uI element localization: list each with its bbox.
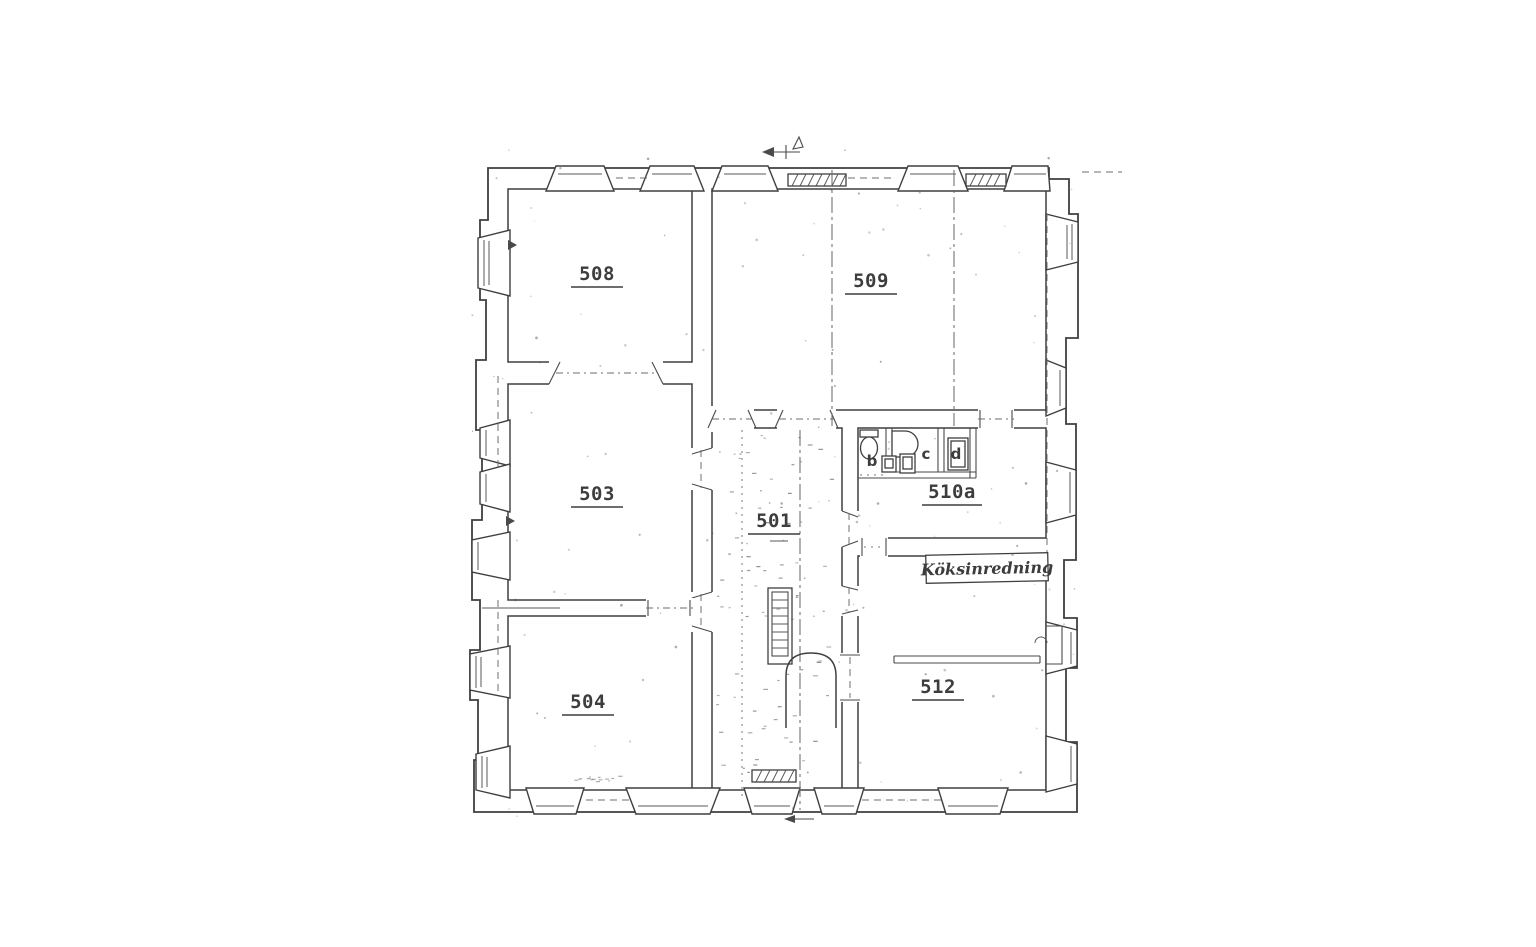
room-label-504: 504 xyxy=(570,691,606,713)
section-arrows xyxy=(506,137,814,823)
room-label-503: 503 xyxy=(579,483,615,505)
toilet-tank xyxy=(860,430,878,437)
outer-wall xyxy=(470,168,1078,812)
door-swing-mark xyxy=(508,240,517,250)
section-arrow-bottom xyxy=(784,815,814,823)
bathtub xyxy=(892,431,918,457)
scanned-floor-plan-page: 501 503 504 508 509 510a 512 b c d Köksi… xyxy=(0,0,1536,947)
section-arrow-top xyxy=(762,137,803,159)
door-swing-mark xyxy=(506,516,515,526)
arch-niche xyxy=(786,653,836,728)
compartment-label-d: d xyxy=(951,445,962,463)
room-label-508: 508 xyxy=(579,263,615,285)
kitchen-annotation: Köksinredning xyxy=(920,553,1054,584)
scan-noise xyxy=(471,149,1075,817)
room-label-512: 512 xyxy=(920,676,956,698)
kitchen-counter xyxy=(894,626,1062,664)
window-openings xyxy=(470,166,1078,814)
room-label-510a: 510a xyxy=(928,481,976,503)
compartment-label-b: b xyxy=(867,452,878,470)
floor-plan-drawing: 501 503 504 508 509 510a 512 b c d Köksi… xyxy=(0,0,1536,947)
room-label-501: 501 xyxy=(756,510,792,532)
room-label-509: 509 xyxy=(853,270,889,292)
stair-radiator xyxy=(768,588,792,664)
kitchen-annotation-text: Köksinredning xyxy=(920,558,1054,580)
compartment-label-c: c xyxy=(922,445,931,463)
